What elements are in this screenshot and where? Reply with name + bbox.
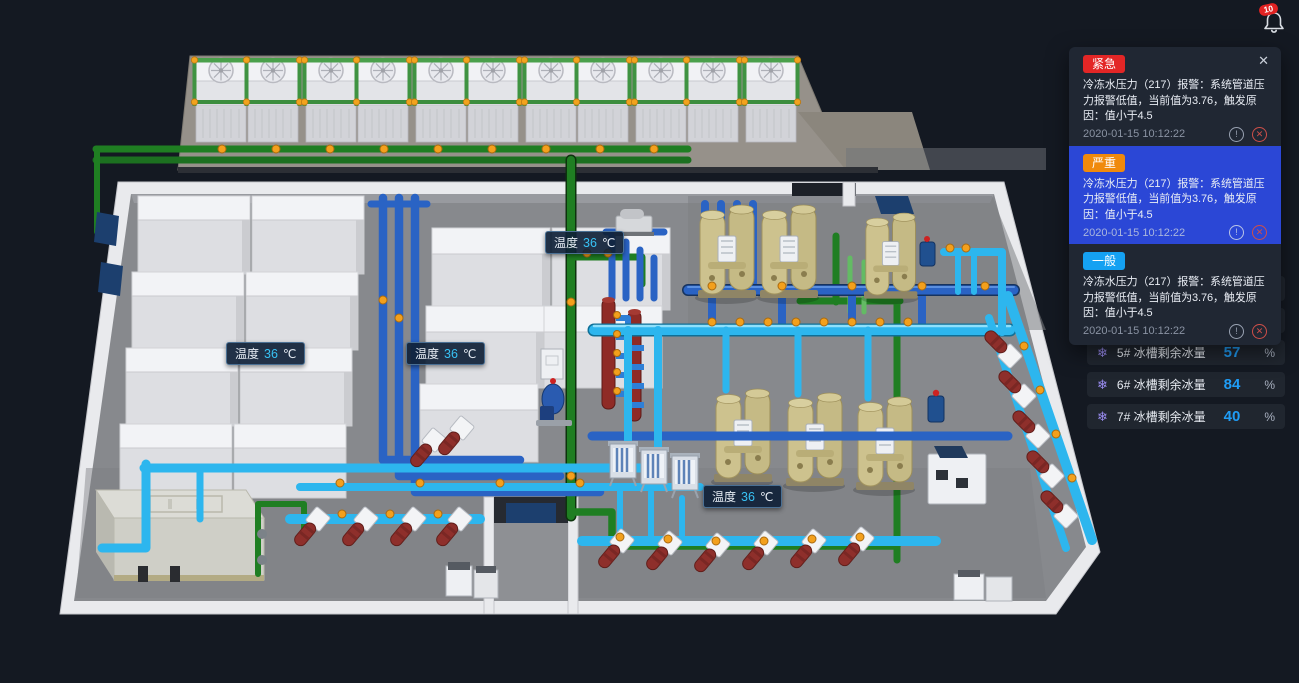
- temperature-value: 36: [583, 236, 597, 250]
- alarm-dismiss-icon[interactable]: ✕: [1252, 127, 1267, 142]
- ice-remaining-unit: %: [1251, 410, 1275, 424]
- ice-remaining-unit: %: [1251, 378, 1275, 392]
- ice-storage-row[interactable]: ❄ 6# 冰槽剩余冰量 84 %: [1087, 372, 1285, 397]
- snowflake-icon: ❄: [1097, 378, 1108, 391]
- temperature-unit: ℃: [760, 490, 773, 504]
- alarm-card-severe[interactable]: 严重 冷冻水压力（217）报警：系统管道压力报警低值，当前值为3.76，触发原因…: [1069, 146, 1281, 245]
- temperature-unit: ℃: [602, 236, 615, 250]
- alarm-timestamp: 2020-01-15 10:12:22: [1083, 227, 1221, 239]
- temperature-value: 36: [444, 347, 458, 361]
- water-tank[interactable]: [96, 490, 264, 582]
- alarm-message: 冷冻水压力（217）报警：系统管道压力报警低值，当前值为3.76，触发原因：值小…: [1083, 78, 1267, 125]
- temperature-name: 温度: [554, 234, 578, 251]
- alarm-info-icon[interactable]: !: [1229, 324, 1244, 339]
- temperature-value: 36: [741, 490, 755, 504]
- alarm-info-icon[interactable]: !: [1229, 225, 1244, 240]
- ice-tank-label: 5# 冰槽剩余冰量: [1117, 344, 1206, 361]
- ice-tank-label: 6# 冰槽剩余冰量: [1117, 376, 1206, 393]
- alarm-message: 冷冻水压力（217）报警：系统管道压力报警低值，当前值为3.76，触发原因：值小…: [1083, 275, 1267, 322]
- severity-badge: 严重: [1083, 154, 1125, 172]
- temperature-unit: ℃: [283, 347, 296, 361]
- alarm-card-urgent[interactable]: 紧急 冷冻水压力（217）报警：系统管道压力报警低值，当前值为3.76，触发原因…: [1069, 47, 1281, 146]
- alarm-popup-panel: ✕ 紧急 冷冻水压力（217）报警：系统管道压力报警低值，当前值为3.76，触发…: [1069, 47, 1281, 345]
- ice-remaining-value: 57: [1213, 344, 1251, 361]
- snowflake-icon: ❄: [1097, 410, 1108, 423]
- plant-monitor-screen: 温度 36 ℃ 温度 36 ℃ 温度 36 ℃ 温度 36 ℃ ❄ 3# 冰槽剩…: [0, 0, 1299, 683]
- alarm-card-general[interactable]: 一般 冷冻水压力（217）报警：系统管道压力报警低值，当前值为3.76，触发原因…: [1069, 244, 1281, 343]
- alarm-message: 冷冻水压力（217）报警：系统管道压力报警低值，当前值为3.76，触发原因：值小…: [1083, 177, 1267, 224]
- notifications-bell-button[interactable]: 10: [1262, 10, 1288, 38]
- ice-tank-label: 7# 冰槽剩余冰量: [1117, 408, 1206, 425]
- ice-remaining-value: 84: [1213, 376, 1251, 393]
- close-icon[interactable]: ✕: [1258, 53, 1269, 69]
- snowflake-icon: ❄: [1097, 346, 1108, 359]
- alarm-info-icon[interactable]: !: [1229, 127, 1244, 142]
- temperature-name: 温度: [415, 345, 439, 362]
- alarm-dismiss-icon[interactable]: ✕: [1252, 225, 1267, 240]
- temperature-unit: ℃: [463, 347, 476, 361]
- alarm-timestamp: 2020-01-15 10:12:22: [1083, 325, 1221, 337]
- temperature-label: 温度 36 ℃: [703, 485, 782, 508]
- alarm-dismiss-icon[interactable]: ✕: [1252, 324, 1267, 339]
- temperature-name: 温度: [712, 488, 736, 505]
- ice-remaining-value: 40: [1213, 408, 1251, 425]
- cooling-towers-group[interactable]: [191, 57, 800, 142]
- ice-remaining-unit: %: [1251, 346, 1275, 360]
- ice-storage-row[interactable]: ❄ 7# 冰槽剩余冰量 40 %: [1087, 404, 1285, 429]
- temperature-label: 温度 36 ℃: [545, 231, 624, 254]
- temperature-value: 36: [264, 347, 278, 361]
- temperature-label: 温度 36 ℃: [226, 342, 305, 365]
- temperature-label: 温度 36 ℃: [406, 342, 485, 365]
- severity-badge: 紧急: [1083, 55, 1125, 73]
- alarm-timestamp: 2020-01-15 10:12:22: [1083, 128, 1221, 140]
- temperature-name: 温度: [235, 345, 259, 362]
- severity-badge: 一般: [1083, 252, 1125, 270]
